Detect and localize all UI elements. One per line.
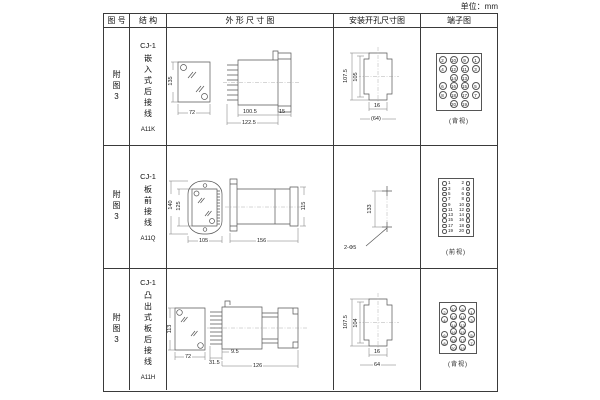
- terminal-19: 19: [461, 100, 469, 108]
- install-drawing-cell-row3: 107.5 104 16 64: [334, 269, 421, 390]
- header-fig-no: 图 号: [104, 14, 130, 28]
- dim-front-width-row3: 72: [184, 354, 192, 360]
- outline-drawing-cell-row3: 113 72 9.5 31.5 126: [167, 269, 334, 390]
- structure-code-row2: A11Q: [141, 236, 156, 242]
- terminal-9: 9: [461, 56, 469, 64]
- terminal-hole-20: [466, 229, 471, 234]
- dim-flange-depth-row1: 15: [279, 109, 285, 115]
- terminal-3: 3: [472, 65, 480, 73]
- terminal-cell-row1: 2109141211314136161558181772019 (背视): [421, 28, 497, 146]
- dim-body-depth-row1: 100.5: [243, 109, 257, 115]
- structure-cell-row2: CJ-1 板前接线 A11Q: [130, 146, 167, 269]
- dim-slot-width-row3: 16: [374, 349, 380, 355]
- terminal-cell-row3: 2109141211314136161558181772019 (背视): [421, 269, 497, 390]
- terminal-12: 12: [450, 65, 458, 73]
- dim-side-height-row2: 115: [301, 195, 307, 217]
- terminal-caption-row3: (背视): [434, 359, 482, 368]
- terminal-16: 16: [450, 328, 457, 335]
- terminal-13: 13: [459, 321, 466, 328]
- page: 单位：mm 图 号 结 构 外 形 尺 寸 图 安装开孔尺寸图 端子图 附图3 …: [0, 0, 600, 400]
- terminal-num-19: 19: [448, 229, 453, 234]
- header-outline-dims: 外 形 尺 寸 图: [167, 14, 334, 28]
- terminal-17: 17: [461, 91, 469, 99]
- spec-table: 图 号 结 构 外 形 尺 寸 图 安装开孔尺寸图 端子图 附图3 CJ-1 嵌…: [103, 13, 498, 392]
- dim-hole-spacing-row2: 133: [367, 198, 373, 220]
- dim-front-width-row2: 105: [198, 238, 209, 244]
- fig-no-cell-row2: 附图3: [104, 146, 130, 269]
- outline-drawing-row3: [167, 269, 334, 390]
- dim-plate-outer-height-row2: 140: [168, 194, 174, 216]
- terminal-hole-8: [466, 197, 471, 202]
- structure-model-row3: CJ-1: [140, 278, 156, 287]
- terminal-6: 6: [441, 331, 448, 338]
- terminal-hole-18: [466, 224, 471, 229]
- structure-desc-row1: 嵌入式后接线: [143, 54, 154, 120]
- terminal-4: 4: [441, 316, 448, 323]
- terminal-hole-7: [442, 197, 447, 202]
- dim-total-depth-row1: 122.5: [241, 120, 257, 126]
- terminal-20: 20: [450, 100, 458, 108]
- terminal-14: 14: [450, 321, 457, 328]
- terminal-8: 8: [439, 91, 447, 99]
- terminal-16: 16: [450, 82, 458, 90]
- terminal-7: 7: [468, 339, 475, 346]
- structure-model-row1: CJ-1: [140, 41, 156, 50]
- terminal-3: 3: [468, 316, 475, 323]
- dim-cutout-inner-height-row3: 104: [353, 312, 359, 334]
- terminal-19: 19: [459, 344, 466, 351]
- dim-cutout-outer-height-row1: 107.5: [343, 65, 349, 87]
- dim-base-offset-row3: 9.5: [231, 349, 239, 355]
- terminal-hole-15: [442, 218, 447, 223]
- dim-slot-width-row1: 16: [374, 103, 380, 109]
- outline-drawing-row2: [167, 146, 334, 269]
- dim-front-height-row1: 135: [168, 70, 174, 92]
- terminal-8: 8: [441, 339, 448, 346]
- terminal-pair-left: 19: [442, 229, 453, 234]
- fig-no-cell-row3: 附图3: [104, 269, 130, 390]
- terminal-grid-row1: 2109141211314136161558181772019: [436, 53, 482, 111]
- outline-drawing-row1: [167, 28, 334, 146]
- dim-cutout-outer-height-row3: 107.5: [343, 311, 349, 333]
- dim-pin-depth-row3: 31.5: [209, 360, 220, 366]
- terminal-caption-row2: (前视): [432, 247, 480, 256]
- fig-no-cell-row1: 附图3: [104, 28, 130, 146]
- dim-hole-span-row1: (64): [370, 116, 382, 122]
- terminal-12: 12: [450, 313, 457, 320]
- terminal-cell-row2: 1234567891011121314151617181920 (前视): [421, 146, 497, 269]
- dim-plate-inner-height-row2: 125: [176, 195, 182, 217]
- structure-cell-row1: CJ-1 嵌入式后接线 A11K: [130, 28, 167, 146]
- unit-label: 单位：mm: [420, 1, 498, 12]
- terminal-grid-row3: 2109141211314136161558181772019: [439, 302, 477, 354]
- terminal-10: 10: [450, 56, 458, 64]
- dim-cutout-inner-height-row1: 105: [353, 66, 359, 88]
- terminal-4: 4: [439, 65, 447, 73]
- dim-front-width-row1: 72: [188, 110, 196, 116]
- terminal-9: 9: [459, 305, 466, 312]
- terminal-2: 2: [439, 56, 447, 64]
- terminal-columns-row2: 1234567891011121314151617181920: [438, 178, 474, 237]
- header-install-dims: 安装开孔尺寸图: [334, 14, 421, 28]
- terminal-hole-9: [442, 203, 447, 208]
- terminal-11: 11: [461, 65, 469, 73]
- terminal-15: 15: [461, 82, 469, 90]
- terminal-hole-3: [442, 187, 447, 192]
- structure-desc-row2: 板前接线: [143, 185, 154, 229]
- dim-hole-label-row2: 2-Φ5: [344, 245, 356, 251]
- structure-desc-row3: 凸出式板后接线: [143, 291, 154, 368]
- terminal-hole-5: [442, 192, 447, 197]
- install-drawing-cell-row1: 107.5 105 16 (64): [334, 28, 421, 146]
- terminal-num-20: 20: [459, 229, 464, 234]
- terminal-2: 2: [441, 308, 448, 315]
- terminal-6: 6: [439, 82, 447, 90]
- fig-no-row2: 附图3: [111, 190, 122, 224]
- terminal-hole-19: [442, 229, 447, 234]
- terminal-5: 5: [468, 331, 475, 338]
- outline-drawing-cell-row2: 140 125 105 156 115: [167, 146, 334, 269]
- terminal-1: 1: [472, 56, 480, 64]
- header-structure: 结 构: [130, 14, 167, 28]
- terminal-hole-4: [466, 187, 471, 192]
- dim-hole-span-row3: 64: [373, 362, 381, 368]
- terminal-hole-12: [466, 208, 471, 213]
- structure-code-row1: A11K: [141, 127, 155, 133]
- structure-model-row2: CJ-1: [140, 172, 156, 181]
- terminal-11: 11: [459, 313, 466, 320]
- terminal-1: 1: [468, 308, 475, 315]
- terminal-7: 7: [472, 91, 480, 99]
- terminal-5: 5: [472, 82, 480, 90]
- terminal-hole-1: [442, 181, 447, 186]
- install-drawing-cell-row2: 133 2-Φ5: [334, 146, 421, 269]
- terminal-pair-right: 20: [459, 229, 470, 234]
- terminal-20: 20: [450, 344, 457, 351]
- terminal-14: 14: [450, 74, 458, 82]
- fig-no-row1: 附图3: [111, 70, 122, 104]
- terminal-15: 15: [459, 328, 466, 335]
- terminal-hole-6: [466, 192, 471, 197]
- terminal-18: 18: [450, 336, 457, 343]
- terminal-caption-row1: (背视): [435, 116, 483, 125]
- terminal-hole-10: [466, 203, 471, 208]
- dim-total-depth-row2: 156: [256, 238, 267, 244]
- terminal-10: 10: [450, 305, 457, 312]
- terminal-18: 18: [450, 91, 458, 99]
- terminal-hole-16: [466, 218, 471, 223]
- outline-drawing-cell-row1: 135 72 100.5 15 122.5: [167, 28, 334, 146]
- terminal-hole-2: [466, 181, 471, 186]
- structure-code-row3: A11H: [141, 375, 156, 381]
- fig-no-row3: 附图3: [111, 313, 122, 347]
- dim-total-depth-row3: 126: [252, 363, 263, 369]
- terminal-hole-13: [442, 213, 447, 218]
- terminal-hole-17: [442, 224, 447, 229]
- header-terminal-diagram: 端子图: [421, 14, 497, 28]
- structure-cell-row3: CJ-1 凸出式板后接线 A11H: [130, 269, 167, 390]
- terminal-hole-11: [442, 208, 447, 213]
- dim-front-height-row3: 113: [167, 318, 173, 340]
- terminal-17: 17: [459, 336, 466, 343]
- terminal-13: 13: [461, 74, 469, 82]
- terminal-hole-14: [466, 213, 471, 218]
